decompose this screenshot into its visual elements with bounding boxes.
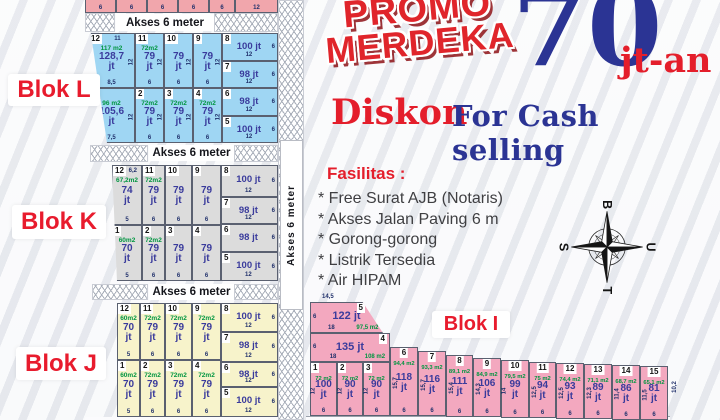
plot-10: 1072m279jt6 (165, 303, 192, 360)
plot-5: 5100 jt612 (222, 116, 278, 143)
dimension-label: 12 (229, 323, 269, 329)
plot-i-6: 694,4 m2118jt15,76 (390, 347, 418, 416)
dimension-label: 6 (447, 409, 472, 415)
dimension-label: 6 (272, 399, 275, 405)
plot-4: 479jt6 (192, 225, 221, 281)
dimension-label: 5 (118, 352, 139, 358)
plot-number: 4 (379, 334, 387, 344)
dimension-label: 15,7 (393, 377, 399, 389)
plot-price: 79jt (141, 323, 164, 343)
plot-number: 1 (118, 361, 126, 371)
plot-number: 10 (165, 34, 178, 44)
plot-i-7: 793,3 m2116jt15,76 (418, 351, 446, 416)
flyer-canvas: Akses 6 meter Akses 6 meter Akses 6 mete… (0, 0, 720, 420)
plot-price: 70jt (113, 244, 141, 264)
plot-number: 4 (193, 361, 201, 371)
compass-star-black (571, 211, 642, 282)
plot-price: 122 jt (311, 311, 382, 321)
plot-i-8: 889,1 m2111jt15,46 (446, 355, 473, 417)
dimension-label: 6 (272, 99, 275, 105)
dimension-label: 18 (330, 354, 337, 360)
dimension-label: 12 (158, 59, 164, 66)
dimension-label: 6 (272, 264, 275, 270)
dimension-label: 12 (229, 353, 269, 359)
plot-price: 79jt (166, 244, 191, 264)
dimension-label: 12 (236, 5, 277, 11)
plot-3: 372m279jt612 (164, 88, 193, 143)
plot-number: 3 (364, 363, 372, 373)
plot-number: 12 (564, 364, 577, 374)
dimension-label: 6 (193, 409, 220, 415)
dimension-label: 6 (338, 408, 362, 414)
dimension-label: 6 (143, 273, 164, 279)
plot-number: 12 (118, 304, 131, 314)
facilities-title: Fasilitas : (327, 164, 405, 184)
plot-9: 979jt6 (192, 165, 221, 225)
plot-number: 2 (136, 89, 144, 99)
plot-number: 8 (223, 34, 231, 44)
dimension-label: 6 (272, 127, 275, 133)
plot-number: 6 (222, 225, 230, 235)
plot-number: 9 (193, 304, 201, 314)
dimension-label: 6 (210, 5, 234, 11)
dimension-label: 6 (530, 410, 555, 416)
plot-price: 79jt (193, 323, 220, 343)
dimension-label: 12 (216, 59, 222, 66)
top-strip-plot: 12 (235, 0, 278, 13)
plot-price: 79jt (193, 244, 220, 264)
plot-price: 98 jt (229, 205, 269, 216)
dimension-label: 6 (194, 80, 221, 86)
plot-6: 698 jt6 (221, 224, 278, 252)
dimension-label: 12,5 (559, 387, 565, 399)
discount-word: Diskon (331, 92, 467, 133)
plot-i-2: 272 m290jt126 (337, 362, 363, 416)
plot-4: 472m279jt6 (192, 360, 221, 417)
plot-i-5: 5122 jt61897,5 m2 (310, 302, 383, 333)
dimension-label: 6 (557, 411, 583, 417)
plot-5: 5100 jt612 (221, 387, 278, 417)
plot-10: 1079jt6 (165, 165, 192, 225)
plot-12: 126,267,2m274jt5 (112, 165, 142, 225)
plot-number: 3 (166, 361, 174, 371)
plot-price: 79jt (193, 186, 220, 206)
plot-price: 100 jt (229, 174, 269, 185)
plot-price: 79jt (141, 380, 164, 400)
plot-7: 798 jt612 (221, 332, 278, 362)
area-label: 89,1 m2 (447, 369, 472, 375)
plot-number: 6 (400, 348, 408, 358)
dimension-label: 7,5 (89, 135, 134, 141)
dimension-label: 12 (158, 114, 164, 121)
plot-price: 79jt (143, 186, 164, 206)
plot-number: 9 (483, 359, 491, 369)
plot-7: 798 jt612 (222, 61, 278, 88)
plot-8: 8100 jt612 (221, 165, 278, 197)
dimension-label: 12 (229, 107, 268, 113)
dimension-label: 6,2 (129, 168, 137, 174)
compass-west-letter: B (600, 200, 614, 209)
plot-price: 100 jt (229, 260, 269, 271)
plot-i-15: 1565,1 m281jt11,56 (640, 366, 668, 420)
dimension-label: 6 (272, 72, 275, 78)
plot-number: 7 (428, 352, 436, 362)
plot-number: 6 (223, 89, 231, 99)
plot-i-3: 372 m290jt126 (363, 362, 390, 416)
plot-i-13: 1371,1 m289jt12,36 (584, 364, 612, 419)
dimension-label: 6 (585, 411, 611, 417)
top-strip-plot: 6 (116, 0, 147, 13)
plot-price: 98 jt (229, 232, 269, 243)
dimension-label: 14 (501, 388, 507, 395)
plot-price: 100 jt (229, 41, 268, 52)
plot-6: 698 jt612 (222, 88, 278, 116)
plot-number: 7 (222, 333, 230, 343)
plot-number: 2 (338, 363, 346, 373)
dimension-label: 12 (129, 59, 135, 66)
plot-i-14: 1468,7 m286jt11,46 (612, 365, 640, 420)
dimension-label: 11,4 (615, 389, 621, 400)
dimension-label: 6 (193, 273, 220, 279)
plot-number: 1 (113, 226, 121, 236)
plot-number: 14 (620, 366, 633, 376)
plot-i-4: 4135 jt618108 m2 (310, 333, 390, 362)
plot-number: 8 (222, 166, 230, 176)
plot-5: 5100 jt612 (221, 252, 278, 281)
plot-number: 10 (166, 304, 179, 314)
plot-number: 10 (509, 361, 522, 371)
plot-number: 9 (194, 34, 202, 44)
plot-price: 98 jt (229, 96, 268, 107)
plot-7: 798 jt612 (221, 197, 278, 224)
area-label: 97,5 m2 (356, 325, 378, 331)
dimension-label: 6 (613, 412, 639, 418)
plot-i-11: 1175 m294jt12,56 (529, 362, 556, 418)
dimension-label: 12 (229, 272, 269, 278)
plot-number: 1 (311, 363, 319, 373)
plot-number: 5 (357, 303, 365, 313)
plot-6: 698 jt612 (221, 362, 278, 387)
plot-number: 5 (223, 117, 231, 127)
plot-price: 79jt (193, 380, 220, 400)
dimension-label: 6 (419, 408, 445, 414)
dimension-label: 12 (229, 408, 269, 414)
plot-number: 3 (165, 89, 173, 99)
plot-i-1: 172 m2100jt126 (310, 362, 337, 416)
area-label: 67,2m2 (113, 177, 141, 184)
plot-number: 7 (223, 62, 231, 72)
dimension-label: 6 (502, 410, 528, 416)
dimension-label: 6 (272, 178, 275, 184)
dimension-label: 12 (337, 388, 343, 395)
plot-price: 100 jt (229, 395, 269, 406)
plot-number: 10 (166, 166, 179, 176)
dimension-label: 12 (187, 59, 193, 66)
plot-2: 272m279jt6 (142, 225, 165, 281)
area-label: 108 m2 (365, 354, 385, 360)
plot-8: 8100 jt612 (221, 303, 278, 332)
area-label: 72m2 (143, 177, 164, 184)
plot-12: 1260m270jt5 (117, 303, 140, 360)
plot-price: 79jt (166, 380, 191, 400)
plot-price: 70jt (118, 323, 139, 343)
dimension-label: 6 (165, 80, 192, 86)
top-strip-plot: 6 (209, 0, 235, 13)
dimension-label: 5 (113, 217, 141, 223)
top-strip-plot: 6 (178, 0, 209, 13)
dimension-label: 6 (272, 315, 275, 321)
plot-number: 5 (222, 388, 230, 398)
dimension-label: 12 (229, 188, 269, 194)
blok-k-map: 126,267,2m274jt5160m270jt51172m279jt6272… (112, 165, 278, 281)
dimension-label: 6 (166, 352, 191, 358)
top-strip-plot: 6 (85, 0, 116, 13)
dimension-label: 6 (193, 217, 220, 223)
plot-11: 1172m279jt6 (140, 303, 165, 360)
area-label: 94,4 m2 (391, 361, 417, 367)
plot-price: 74jt (113, 186, 141, 206)
headline-price-suffix: jt-an (620, 40, 711, 81)
dimension-label: 6 (474, 409, 500, 415)
plot-number: 4 (193, 226, 201, 236)
compass-rose: B U T S (556, 196, 658, 298)
dimension-label: 6 (272, 372, 275, 378)
dimension-label: 6 (272, 44, 275, 50)
plot-price: 79jt (166, 323, 191, 343)
dimension-label: 6 (179, 5, 208, 11)
plot-price: 100 jt (229, 311, 269, 322)
dimension-label: 11,5 (643, 389, 649, 400)
dimension-label: 6 (166, 273, 191, 279)
dimension-label: 6 (143, 217, 164, 223)
dimension-label: 6 (136, 135, 163, 141)
top-strip-plot: 6 (147, 0, 178, 13)
plot-number: 5 (222, 253, 230, 263)
dimension-label: 6 (194, 135, 221, 141)
dimension-label: 11 (114, 36, 120, 42)
dimension-label: 15,7 (421, 379, 427, 391)
dimension-label: 14,3 (476, 384, 482, 396)
dimension-label: 12 (229, 52, 268, 58)
blok-k-plate: Blok K (12, 205, 106, 239)
plot-2: 272m279jt6 (140, 360, 165, 417)
plot-number: 11 (143, 166, 155, 176)
dimension-label: 6 (165, 135, 192, 141)
plot-i-12: 1274,4 m293jt12,56 (556, 363, 584, 419)
plot-price: 79jt (166, 186, 191, 206)
plot-number: 3 (166, 226, 174, 236)
plot-10: 1079jt612 (164, 33, 193, 88)
dimension-label: 12 (229, 215, 269, 221)
plot-3: 379jt6 (165, 225, 192, 281)
plot-number: 13 (592, 365, 605, 375)
dimension-label: 12 (310, 388, 316, 395)
compass-east-letter: T (600, 286, 614, 294)
dimension-label: 12 (363, 388, 369, 395)
dimension-label: 18 (328, 325, 335, 331)
dimension-label: 6 (311, 408, 336, 414)
plot-number: 11 (141, 304, 153, 314)
blok-i-label: Blok I (444, 313, 498, 336)
dimension-label: 6 (148, 5, 177, 11)
plot-11: 1172m279jt612 (135, 33, 164, 88)
blok-l-map: 1211117 m2128,7jt8,512196 m2105,6jt7,512… (88, 33, 278, 143)
dimension-label: 15,4 (449, 382, 455, 394)
dimension-label: 6 (391, 408, 417, 414)
dimension-label: 14,5 (322, 294, 334, 300)
plot-number: 4 (194, 89, 202, 99)
dimension-label: 12 (229, 378, 269, 384)
plot-price: 70jt (118, 380, 139, 400)
plot-price: 79jt (143, 244, 164, 264)
plot-11: 1172m279jt6 (142, 165, 165, 225)
plot-price: 100 jt (229, 124, 268, 135)
dimension-label: 6 (313, 344, 316, 350)
dimension-label: 6 (136, 80, 163, 86)
dimension-label: 6 (364, 408, 389, 414)
plot-number: 2 (143, 226, 151, 236)
plot-number: 8 (222, 304, 230, 314)
dimension-label: 6 (641, 412, 667, 418)
plot-number: 11 (536, 363, 548, 373)
dimension-label: 6 (141, 409, 164, 415)
plot-number: 8 (455, 356, 463, 366)
plot-9: 979jt612 (193, 33, 222, 88)
dimension-label: 12 (229, 79, 268, 85)
dimension-label: 5 (113, 273, 141, 279)
dimension-label: 6 (117, 5, 146, 11)
plot-2: 272m279jt612 (135, 88, 164, 143)
discount-rest: For Cash selling (452, 99, 720, 167)
blok-l-plate: Blok L (8, 74, 100, 106)
compass-south-letter: S (557, 243, 571, 251)
plot-price: 105,6jt (89, 107, 134, 127)
blok-k-label: Blok K (21, 208, 97, 236)
plot-i-9: 984,9 m2106jt14,36 (473, 358, 501, 417)
dimension-label: 6 (86, 5, 115, 11)
plot-8: 8100 jt612 (222, 33, 278, 61)
plot-1: 160m270jt5 (112, 225, 142, 281)
compass-north-letter: U (643, 242, 657, 251)
dimension-label: 12 (216, 114, 222, 121)
blok-l-label: Blok L (17, 76, 90, 104)
dimension-label: 6 (166, 217, 191, 223)
blok-j-label: Blok J (25, 350, 97, 378)
plot-9: 972m279jt6 (192, 303, 221, 360)
dimension-label: 12 (129, 114, 135, 121)
plot-price: 98 jt (229, 69, 268, 80)
plot-price: 135 jt (311, 342, 389, 352)
dimension-label: 6 (272, 208, 275, 214)
plot-number: 6 (222, 363, 230, 373)
dimension-label: 12 (187, 114, 193, 121)
plot-4: 472m279jt612 (193, 88, 222, 143)
dimension-label: 6 (141, 352, 164, 358)
plot-number: 12 (89, 34, 102, 44)
plot-number: 2 (141, 361, 149, 371)
dimension-label: 5 (118, 409, 139, 415)
plot-number: 7 (222, 198, 230, 208)
dimension-label: 6 (272, 235, 275, 241)
dimension-label: 6 (193, 352, 220, 358)
plot-number: 12 (113, 166, 126, 176)
plot-price: 98 jt (229, 340, 269, 351)
plot-number: 9 (193, 166, 201, 176)
plot-1: 160m270jt5 (117, 360, 140, 417)
plot-price: 128,7jt (89, 52, 134, 72)
dimension-label: 12 (229, 134, 268, 140)
dimension-label: 12,5 (532, 386, 538, 398)
plot-number: 15 (648, 367, 661, 377)
area-label: 93,3 m2 (419, 365, 445, 371)
blok-i-plate: Blok I (432, 311, 510, 338)
blok-j-map: 1260m270jt5160m270jt51172m279jt6272m279j… (117, 303, 278, 417)
dimension-label: 6 (272, 344, 275, 350)
plot-i-10: 1079,5 m299jt146 (501, 360, 529, 418)
plot-3: 372m279jt6 (165, 360, 192, 417)
dimension-label: 6 (166, 409, 191, 415)
blok-j-plate: Blok J (16, 347, 106, 380)
dimension-label: 12,3 (587, 388, 593, 400)
dimension-label: 6 (313, 314, 316, 320)
dimension-label: 10,2 (672, 381, 678, 393)
plot-number: 11 (136, 34, 148, 44)
